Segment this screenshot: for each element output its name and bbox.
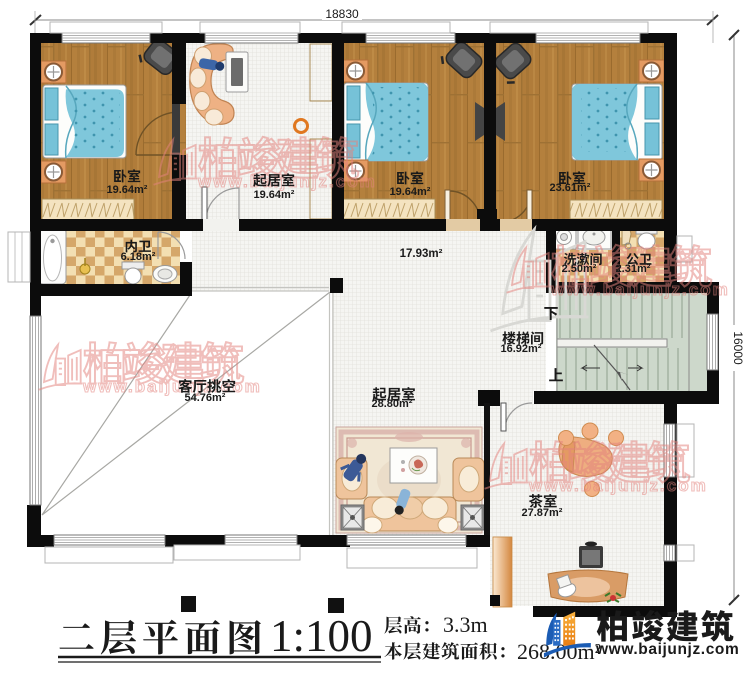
svg-text:19.64m²: 19.64m² [390, 186, 431, 198]
svg-text:www.baijunjz.com: www.baijunjz.com [550, 280, 730, 299]
svg-text:www.baijunjz.com: www.baijunjz.com [528, 476, 708, 495]
svg-text:www.baijunjz.com: www.baijunjz.com [595, 641, 739, 658]
svg-text:2.31m²: 2.31m² [616, 263, 651, 275]
svg-text:2.50m²: 2.50m² [562, 263, 597, 275]
svg-text:1:100: 1:100 [270, 611, 373, 661]
svg-text:27.87m²: 27.87m² [522, 507, 563, 519]
svg-text:www.baijunjz.com: www.baijunjz.com [82, 377, 262, 396]
svg-text:3.3m: 3.3m [443, 612, 488, 637]
svg-text:54.76m²: 54.76m² [185, 392, 226, 404]
svg-text:23.61m²: 23.61m² [550, 182, 591, 194]
svg-text:16000: 16000 [731, 331, 745, 365]
svg-text:18830: 18830 [325, 7, 359, 21]
svg-text:19.64m²: 19.64m² [107, 184, 148, 196]
svg-text:16.92m²: 16.92m² [501, 343, 542, 355]
svg-text:28.80m²: 28.80m² [372, 398, 413, 410]
svg-text:17.93m²: 17.93m² [400, 248, 443, 260]
svg-text:6.18m²: 6.18m² [121, 251, 156, 263]
svg-text:19.64m²: 19.64m² [254, 189, 295, 201]
